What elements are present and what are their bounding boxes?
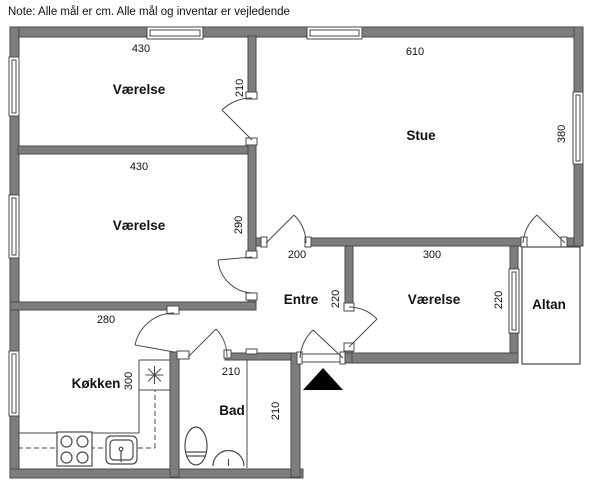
wall-kitchen-bad	[170, 352, 179, 477]
floor-plan-drawing: Værelse Værelse Stue Entre Værelse Altan…	[0, 0, 600, 488]
dim-vaerelse-right-height: 220	[493, 291, 505, 309]
label-altan: Altan	[532, 297, 566, 312]
wall-left-rooms-divider	[18, 146, 249, 154]
window-left-vaerelse-mid	[9, 195, 19, 258]
window-left-koekken	[9, 351, 19, 416]
dim-entre-height: 220	[330, 290, 342, 308]
bathroom-sink	[213, 451, 244, 467]
kitchen-sink	[106, 436, 137, 464]
wall-bad-top	[225, 353, 291, 360]
room-labels: Værelse Værelse Stue Entre Værelse Altan…	[72, 82, 566, 418]
dim-vaerelse-right-width: 300	[423, 249, 441, 261]
window-top-stue	[307, 27, 362, 39]
wall-stue-bottom-b	[306, 238, 523, 246]
entrance-arrow	[303, 368, 343, 390]
dim-bad-width: 210	[222, 366, 240, 378]
floor-plan: Note: Alle mål er cm. Alle mål og invent…	[0, 0, 600, 488]
label-vaerelse-top: Værelse	[113, 82, 166, 97]
kitchen-counter	[18, 360, 170, 448]
wall-vaerelse2-bottom	[10, 302, 256, 310]
wall-left-vertical-a	[248, 36, 256, 97]
label-bad: Bad	[219, 403, 245, 418]
wall-outer-bottom	[10, 469, 303, 478]
dim-bad-height: 210	[270, 402, 282, 420]
dim-stue-width: 610	[406, 46, 424, 58]
window-left-vaerelse-top	[9, 57, 19, 116]
wall-bad-right	[291, 353, 300, 477]
dim-vaerelse-mid-width: 430	[130, 161, 148, 173]
dim-vaerelse-top-height: 210	[234, 79, 246, 97]
wall-outer-top	[10, 27, 583, 37]
door-vaerelse-top	[222, 98, 252, 140]
dim-vaerelse-mid-height: 290	[233, 216, 245, 234]
dim-koekken-height: 300	[123, 372, 135, 390]
wall-entre-vaerelse-a	[345, 246, 353, 305]
window-right-stue	[573, 92, 583, 164]
label-vaerelse-right: Værelse	[408, 292, 461, 307]
door-jambs	[167, 92, 567, 364]
toilet	[185, 427, 207, 465]
dim-koekken-width: 280	[97, 314, 115, 326]
dim-vaerelse-top-width: 430	[132, 43, 150, 55]
door-koekken	[135, 313, 174, 352]
label-entre: Entre	[284, 292, 319, 307]
label-stue: Stue	[406, 128, 436, 143]
door-entre-vaerelse-right	[349, 307, 377, 347]
wall-vaerelse-right-bottom	[352, 353, 518, 363]
dim-stue-height: 380	[556, 125, 568, 143]
window-top-vaerelse	[147, 27, 203, 39]
label-koekken: Køkken	[72, 376, 121, 391]
wall-left-vertical-b	[248, 140, 256, 257]
label-vaerelse-mid: Værelse	[113, 218, 166, 233]
ventilation-symbol	[146, 366, 164, 384]
door-vaerelse-mid	[218, 257, 252, 293]
wall-vaerelse-altan-b	[510, 332, 518, 353]
door-bad	[188, 329, 227, 357]
stove	[57, 432, 92, 466]
dimension-labels: 430 210 430 290 610 380 200 220 300 220 …	[97, 43, 568, 420]
window-vaerelse-altan	[509, 269, 519, 333]
dim-entre-width: 200	[288, 249, 306, 261]
wall-vaerelse-altan-a	[510, 246, 518, 270]
